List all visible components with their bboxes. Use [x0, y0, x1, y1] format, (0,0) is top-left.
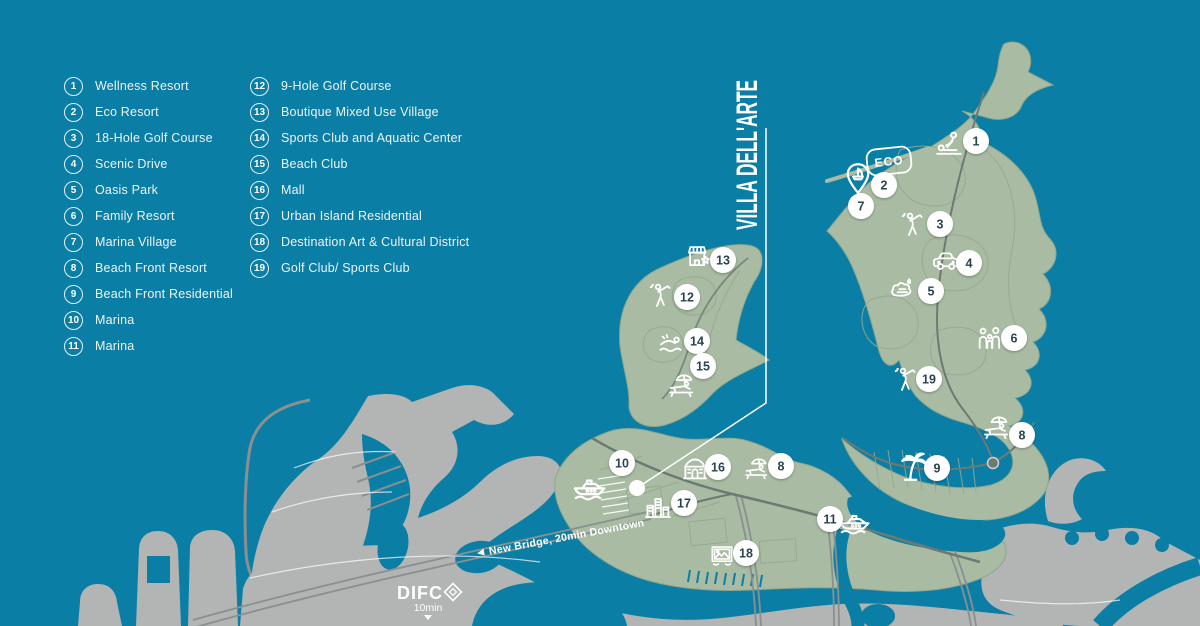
map-marker-6: 6: [1001, 325, 1027, 351]
legend-number: 9: [64, 285, 83, 304]
map-marker-9: 9: [924, 455, 950, 481]
legend-label: Scenic Drive: [95, 157, 168, 171]
legend-number: 2: [64, 103, 83, 122]
legend-number: 7: [64, 233, 83, 252]
legend-item-4: 4Scenic Drive: [64, 151, 233, 177]
legend-number: 4: [64, 155, 83, 174]
map-marker-12: 12: [674, 284, 700, 310]
marker-number: 16: [711, 460, 725, 474]
legend-label: Mall: [281, 183, 305, 197]
legend-item-7: 7Marina Village: [64, 229, 233, 255]
legend-label: Golf Club/ Sports Club: [281, 261, 410, 275]
legend-item-8: 8Beach Front Resort: [64, 255, 233, 281]
marker-number: 2: [881, 178, 888, 192]
marker-number: 14: [690, 334, 704, 348]
legend-number: 1: [64, 77, 83, 96]
legend-item-16: 16Mall: [250, 177, 469, 203]
leader-dot: [629, 480, 645, 496]
marker-number: 1: [973, 134, 980, 148]
legend-label: 18-Hole Golf Course: [95, 131, 213, 145]
legend-item-5: 5Oasis Park: [64, 177, 233, 203]
legend-label: Family Resort: [95, 209, 175, 223]
legend-label: Beach Front Resort: [95, 261, 207, 275]
map-marker-5: 5: [918, 278, 944, 304]
map-marker-14: 14: [684, 328, 710, 354]
map-marker-3: 3: [927, 211, 953, 237]
legend-item-15: 15Beach Club: [250, 151, 469, 177]
legend-item-9: 9Beach Front Residential: [64, 281, 233, 307]
legend-number: 12: [250, 77, 269, 96]
map-marker-1: 1: [963, 128, 989, 154]
legend-item-11: 11Marina: [64, 333, 233, 359]
map-marker-8: 8: [768, 453, 794, 479]
marker-number: 7: [858, 199, 865, 213]
marker-number: 15: [696, 359, 710, 373]
map-marker-7: 7: [848, 193, 874, 219]
legend-item-1: 1Wellness Resort: [64, 73, 233, 99]
tower-canal: [147, 556, 170, 583]
marker-number: 19: [922, 372, 936, 386]
map-marker-18: 18: [733, 540, 759, 566]
legend-item-6: 6Family Resort: [64, 203, 233, 229]
legend-item-12: 129-Hole Golf Course: [250, 73, 469, 99]
legend-number: 17: [250, 207, 269, 226]
mainland-tower-3: [188, 530, 238, 626]
legend-label: Wellness Resort: [95, 79, 189, 93]
legend-item-3: 318-Hole Golf Course: [64, 125, 233, 151]
map-title: VILLA DELL'ARTE: [731, 80, 764, 230]
legend-item-14: 14Sports Club and Aquatic Center: [250, 125, 469, 151]
legend-number: 3: [64, 129, 83, 148]
legend-item-17: 17Urban Island Residential: [250, 203, 469, 229]
legend-label: Boutique Mixed Use Village: [281, 105, 439, 119]
marker-number: 13: [716, 253, 730, 267]
map-marker-4: 4: [956, 250, 982, 276]
legend-label: Marina: [95, 339, 134, 353]
map-marker-15: 15: [690, 353, 716, 379]
legend-number: 5: [64, 181, 83, 200]
map-marker-17: 17: [671, 490, 697, 516]
masterplan-map-page: VILLA DELL'ARTE ECO DIFC 10min New Bridg…: [0, 0, 1200, 626]
legend-number: 13: [250, 103, 269, 122]
marker-number: 10: [615, 456, 629, 470]
legend-label: 9-Hole Golf Course: [281, 79, 392, 93]
legend-number: 18: [250, 233, 269, 252]
marker-number: 12: [680, 290, 694, 304]
marker-number: 11: [823, 512, 836, 526]
legend-column-2: 129-Hole Golf Course13Boutique Mixed Use…: [250, 73, 469, 281]
legend-number: 11: [64, 337, 83, 356]
map-marker-8: 8: [1009, 422, 1035, 448]
difc-time: 10min: [414, 602, 443, 614]
legend-number: 6: [64, 207, 83, 226]
map-marker-10: 10: [609, 450, 635, 476]
legend-number: 10: [64, 311, 83, 330]
marker-number: 3: [937, 217, 944, 231]
legend-number: 15: [250, 155, 269, 174]
legend-label: Sports Club and Aquatic Center: [281, 131, 462, 145]
legend-label: Marina: [95, 313, 134, 327]
marker-number: 6: [1011, 331, 1018, 345]
legend-label: Urban Island Residential: [281, 209, 422, 223]
legend-label: Destination Art & Cultural District: [281, 235, 469, 249]
legend-item-10: 10Marina: [64, 307, 233, 333]
legend-number: 8: [64, 259, 83, 278]
marker-number: 8: [1019, 428, 1026, 442]
marker-number: 9: [934, 461, 941, 475]
legend-item-18: 18Destination Art & Cultural District: [250, 229, 469, 255]
legend-label: Marina Village: [95, 235, 177, 249]
map-marker-13: 13: [710, 247, 736, 273]
legend-item-13: 13Boutique Mixed Use Village: [250, 99, 469, 125]
legend-column-1: 1Wellness Resort2Eco Resort318-Hole Golf…: [64, 73, 233, 359]
marker-number: 18: [739, 546, 753, 560]
legend-label: Beach Front Residential: [95, 287, 233, 301]
legend-label: Oasis Park: [95, 183, 158, 197]
map-marker-11: 11: [817, 506, 843, 532]
legend-item-19: 19Golf Club/ Sports Club: [250, 255, 469, 281]
marker-number: 4: [966, 256, 973, 270]
map-marker-2: 2: [871, 172, 897, 198]
legend-label: Beach Club: [281, 157, 348, 171]
marker-number: 8: [778, 459, 785, 473]
map-marker-19: 19: [916, 366, 942, 392]
map-marker-16: 16: [705, 454, 731, 480]
legend-label: Eco Resort: [95, 105, 159, 119]
roundabout: [988, 458, 999, 469]
marker-number: 17: [677, 496, 691, 510]
legend-number: 14: [250, 129, 269, 148]
marker-number: 5: [928, 284, 935, 298]
legend-item-2: 2Eco Resort: [64, 99, 233, 125]
legend-number: 16: [250, 181, 269, 200]
difc-label: DIFC: [397, 583, 443, 603]
legend-number: 19: [250, 259, 269, 278]
